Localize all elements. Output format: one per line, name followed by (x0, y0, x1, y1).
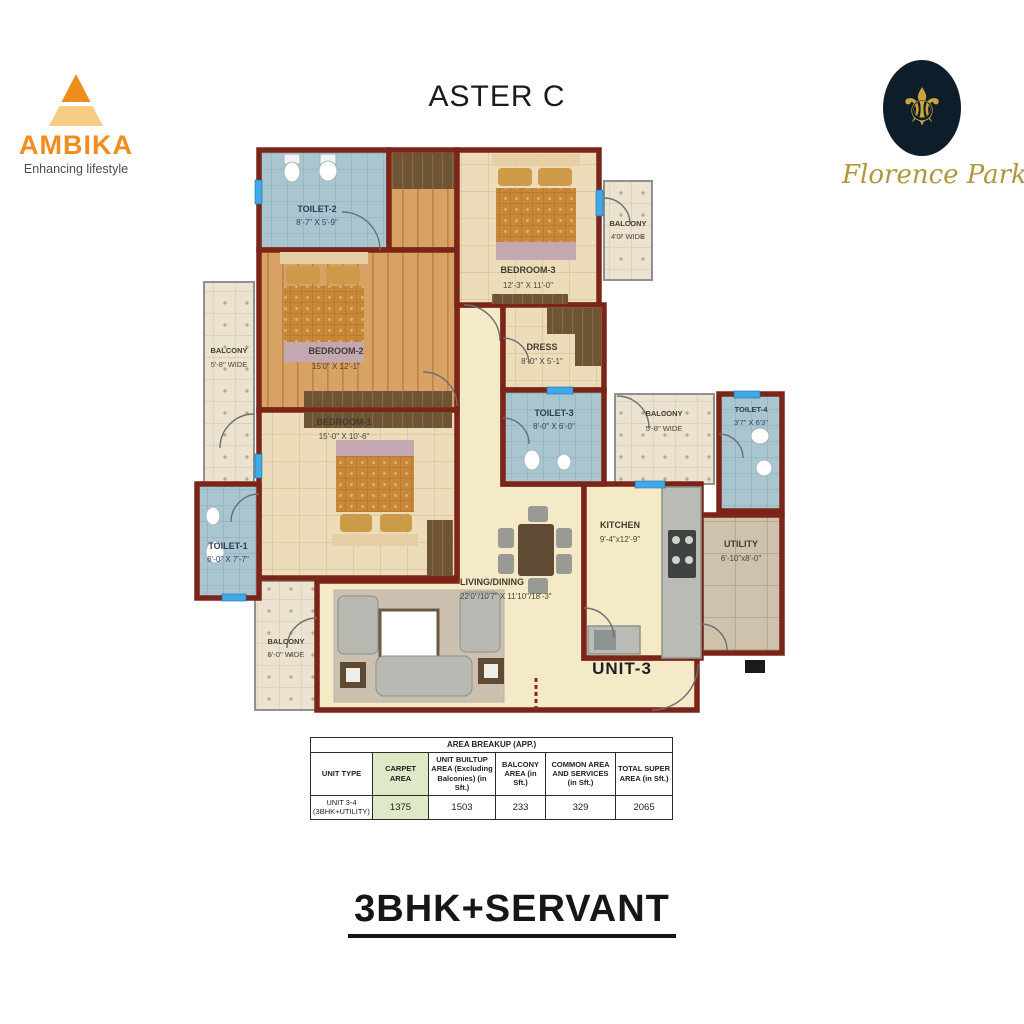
label-balcony-top: BALCONY (609, 219, 646, 228)
room-balcony-left (204, 282, 254, 484)
label-bedroom-3: BEDROOM-3 (500, 265, 555, 275)
label-utility: UTILITY (724, 539, 758, 549)
col-balcony-area: BALCONY AREA (in Sft.) (496, 753, 546, 796)
floor-plan: TOILET-2 8'-7" X 5'-9" BEDROOM-2 15'0" X… (192, 138, 792, 718)
table-header-row: UNIT TYPE CARPET AREA UNIT BUILTUP AREA … (311, 753, 673, 796)
label-toilet-2: TOILET-2 (297, 204, 336, 214)
label-balcony-right: BALCONY (645, 409, 682, 418)
dims-dress: 8'-0" X 5'-1" (521, 357, 563, 366)
page-title: ASTER C (377, 80, 617, 114)
room-toilet-3 (503, 390, 604, 484)
cell-unit-type: UNIT 3-4 (3BHK+UTILITY) (311, 795, 373, 820)
label-bedroom-2: BEDROOM-2 (308, 346, 363, 356)
cell-builtup-area: 1503 (429, 795, 496, 820)
col-common-area: COMMON AREA AND SERVICES (in Sft.) (546, 753, 616, 796)
dims-utility: 6'-10"x8'-0" (721, 554, 761, 563)
logo-oval: ⚜ (883, 60, 961, 156)
label-toilet-3: TOILET-3 (534, 408, 573, 418)
cell-total-area: 2065 (616, 795, 673, 820)
dims-balcony-top: 4'0" WIDE (611, 232, 645, 241)
cell-balcony-area: 233 (496, 795, 546, 820)
unit-label: UNIT-3 (592, 659, 652, 678)
table-data-row: UNIT 3-4 (3BHK+UTILITY) 1375 1503 233 32… (311, 795, 673, 820)
ambika-logo: AMBIKA Enhancing lifestyle (12, 72, 140, 176)
dims-bedroom-2: 15'0" X 12'-1" (312, 362, 360, 371)
dims-living-dining: 22'0"/10'7" X 11'10"/18'-3" (460, 592, 552, 601)
dims-balcony-bottom: 5'-0" WIDE (268, 650, 305, 659)
dims-bedroom-3: 12'-3" X 11'-0" (503, 281, 553, 290)
dims-toilet-2: 8'-7" X 5'-9" (296, 218, 338, 227)
brand-script-name: Florence Park (842, 160, 1002, 190)
unit-type-line1: UNIT 3-4 (312, 798, 371, 807)
poster: AMBIKA Enhancing lifestyle ASTER C ⚜ Flo… (0, 0, 1024, 1024)
tv-unit (492, 294, 568, 304)
label-bedroom-1: BEDROOM-1 (316, 417, 371, 427)
col-carpet-area: CARPET AREA (373, 753, 429, 796)
label-toilet-4: TOILET-4 (735, 405, 769, 414)
wardrobe (427, 520, 453, 576)
sofa-set (334, 590, 504, 702)
label-toilet-1: TOILET-1 (208, 541, 247, 551)
entry-step (745, 660, 765, 673)
fleur-de-lis-icon: ⚜ (899, 82, 946, 134)
room-utility (701, 515, 782, 653)
label-dress: DRESS (526, 342, 557, 352)
unit-type-line2: (3BHK+UTILITY) (312, 807, 371, 816)
cell-common-area: 329 (546, 795, 616, 820)
ambika-triangle-icon (47, 72, 105, 128)
sink (594, 630, 616, 650)
table-title: AREA BREAKUP (APP.) (311, 738, 673, 753)
dims-bedroom-1: 15'-0" X 10'-6" (319, 432, 370, 441)
area-breakup-table: AREA BREAKUP (APP.) UNIT TYPE CARPET ARE… (310, 737, 673, 820)
unit-type-title: 3BHK+SERVANT (348, 888, 676, 938)
label-kitchen: KITCHEN (600, 520, 640, 530)
dims-kitchen: 9'-4"x12'-9" (600, 535, 640, 544)
col-builtup-area: UNIT BUILTUP AREA (Excluding Balconies) … (429, 753, 496, 796)
col-total-area: TOTAL SUPER AREA (in Sft.) (616, 753, 673, 796)
label-balcony-bottom: BALCONY (267, 637, 304, 646)
dims-balcony-right: 5'-8" WIDE (646, 424, 683, 433)
wardrobe (304, 391, 452, 407)
florence-park-logo: ⚜ Florence Park (842, 60, 1002, 190)
label-living-dining: LIVING/DINING (460, 577, 524, 587)
wardrobe (392, 153, 454, 189)
dims-balcony-left: 5'-8" WIDE (211, 360, 248, 369)
brand-tagline: Enhancing lifestyle (12, 162, 140, 176)
wardrobe (575, 308, 601, 366)
label-balcony-left: BALCONY (210, 346, 247, 355)
dims-toilet-1: 6'-0" X 7'-7" (207, 555, 249, 564)
col-unit-type: UNIT TYPE (311, 753, 373, 796)
cell-carpet-area: 1375 (373, 795, 429, 820)
room-balcony-right (615, 394, 714, 484)
room-balcony-top (604, 181, 652, 280)
footer: 3BHK+SERVANT (0, 888, 1024, 938)
brand-name: AMBIKA (12, 130, 140, 161)
dims-toilet-3: 8'-0" X 6'-0" (533, 422, 575, 431)
dims-toilet-4: 3'7" X 6'3" (734, 418, 768, 427)
